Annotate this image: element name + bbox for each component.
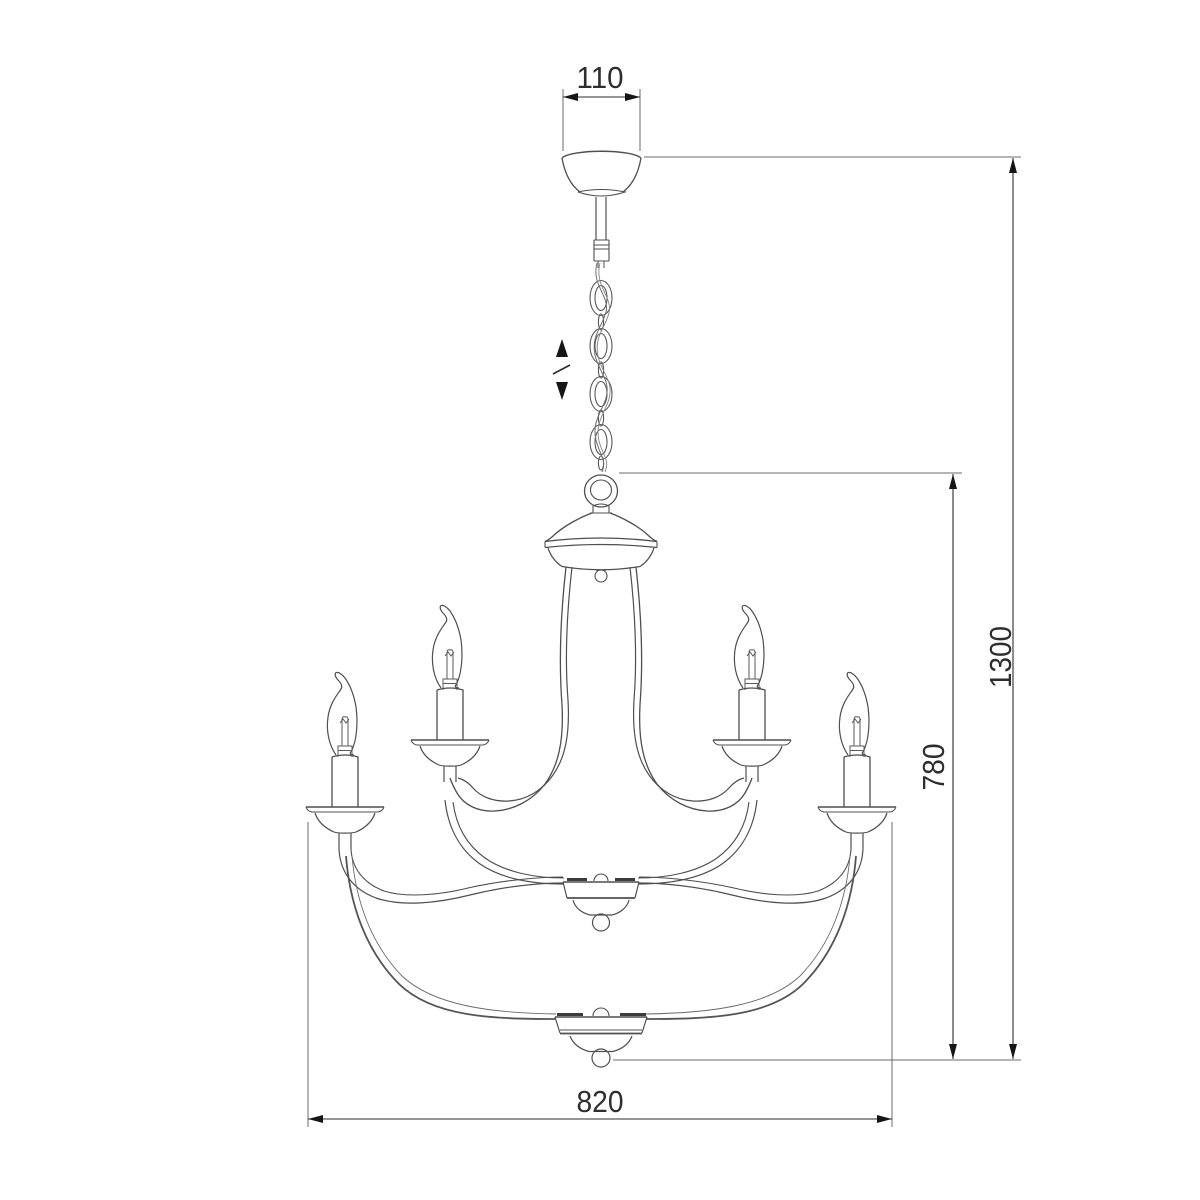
- arm-group-left: [339, 567, 572, 1019]
- ceiling-canopy: [562, 151, 641, 240]
- dim-overall-height: 1300: [613, 157, 1021, 1060]
- dim-fixture-width-label: 820: [577, 1084, 624, 1119]
- candle-inner-right: [713, 605, 791, 782]
- dim-canopy-width: 110: [563, 60, 640, 151]
- dim-fixture-width: 820: [308, 822, 892, 1127]
- candle-inner-left: [411, 605, 489, 782]
- dim-fixture-height-label: 780: [916, 744, 951, 791]
- hanging-ring: [585, 475, 618, 513]
- candle-outer-right: [818, 672, 896, 849]
- dim-overall-height-label: 1300: [983, 626, 1018, 688]
- candle-outer-left: [306, 672, 384, 849]
- arm-group-right: [630, 567, 863, 1019]
- technical-drawing-page: 110 1300 780 820: [0, 0, 1200, 1200]
- chain-connector: [594, 240, 609, 268]
- middle-finial: [563, 874, 639, 931]
- dim-fixture-height: 780: [619, 473, 962, 1059]
- chain-adjust-icon: [553, 339, 570, 400]
- dim-canopy-width-label: 110: [577, 60, 624, 95]
- chandelier-drawing: 110 1300 780 820: [0, 0, 1200, 1200]
- bottom-finial: [555, 1008, 647, 1067]
- column-cap: [545, 513, 657, 582]
- suspension-chain: [590, 263, 612, 472]
